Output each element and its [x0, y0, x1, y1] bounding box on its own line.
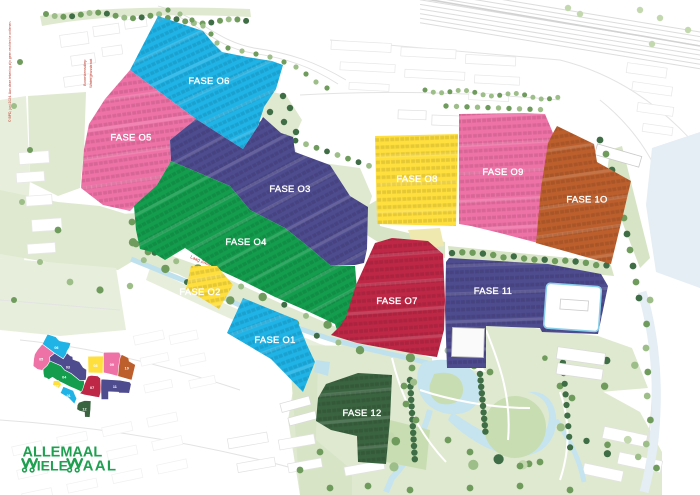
svg-text:IELE: IELE: [37, 458, 68, 474]
svg-text:FASE O5: FASE O5: [110, 132, 151, 143]
svg-text:09: 09: [110, 363, 114, 367]
svg-text:© BPD, juni 2024. Aan deze tek: © BPD, juni 2024. Aan deze tekening zijn…: [8, 21, 12, 122]
svg-text:FASE O1: FASE O1: [254, 334, 295, 345]
svg-text:FASE O4: FASE O4: [225, 236, 266, 247]
svg-text:FASE 11: FASE 11: [474, 285, 512, 296]
svg-text:FASE O2: FASE O2: [179, 286, 220, 297]
svg-text:FASE O7: FASE O7: [376, 295, 417, 306]
svg-text:AAL: AAL: [83, 458, 118, 475]
svg-text:12: 12: [82, 408, 86, 412]
svg-text:11: 11: [113, 385, 117, 389]
svg-text:08: 08: [93, 364, 97, 368]
svg-text:FASE 1O: FASE 1O: [566, 194, 607, 205]
svg-text:Boomkensdiep: Boomkensdiep: [82, 59, 87, 86]
svg-text:FASE 12: FASE 12: [342, 407, 381, 418]
svg-text:05: 05: [39, 357, 43, 361]
svg-text:06: 06: [54, 346, 58, 350]
svg-text:Watergeusstraat: Watergeusstraat: [88, 58, 93, 88]
svg-text:FASE O6: FASE O6: [188, 75, 229, 86]
svg-text:FASE O3: FASE O3: [269, 183, 310, 194]
svg-text:07: 07: [90, 386, 94, 390]
svg-text:03: 03: [66, 366, 70, 370]
svg-text:01: 01: [67, 394, 71, 398]
svg-text:02: 02: [55, 384, 59, 388]
svg-text:10: 10: [125, 367, 129, 371]
svg-text:FASE O9: FASE O9: [482, 166, 523, 177]
svg-text:FASE O8: FASE O8: [396, 173, 437, 184]
